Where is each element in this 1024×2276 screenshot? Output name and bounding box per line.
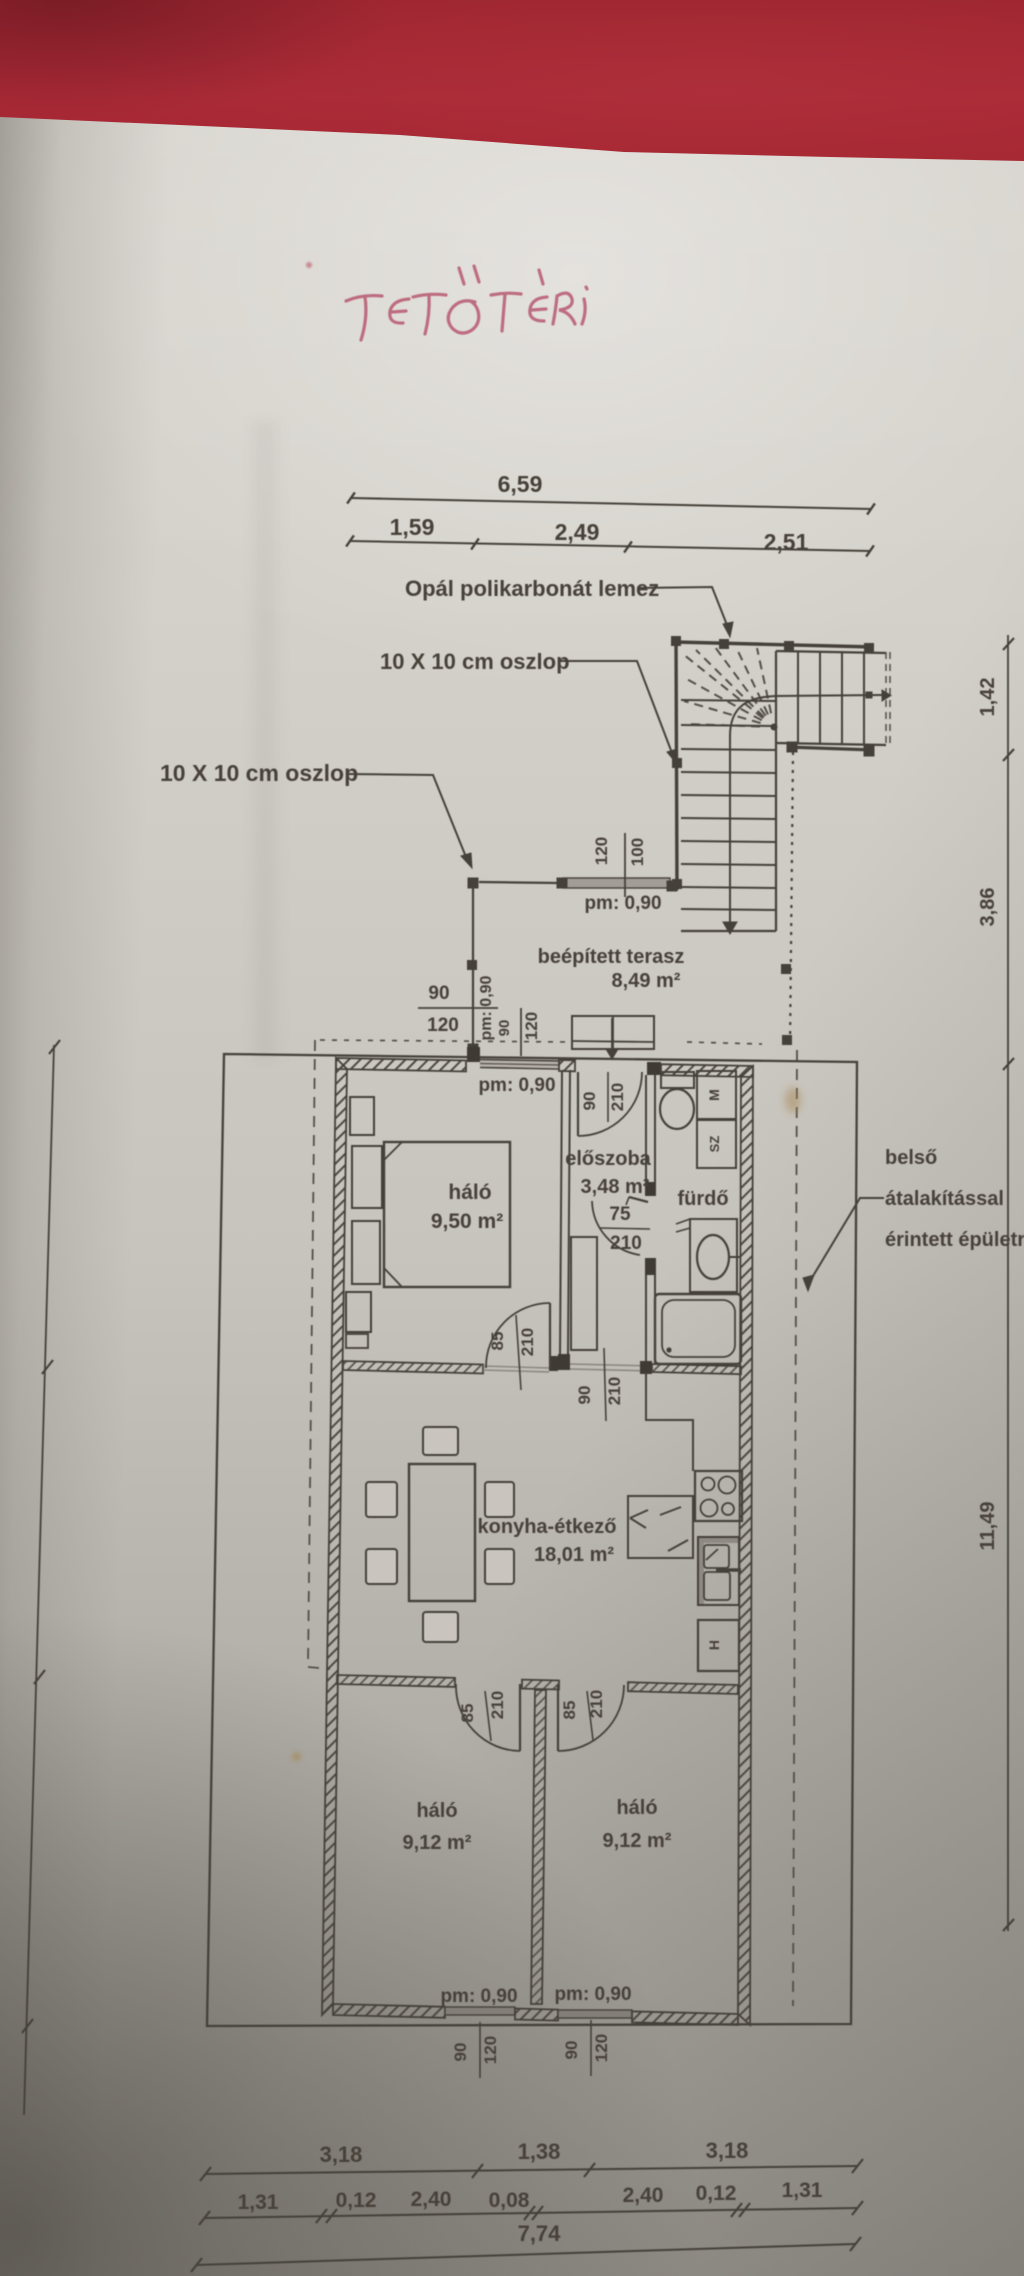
svg-text:210: 210 (587, 1690, 606, 1718)
svg-text:konyha-étkező: konyha-étkező (478, 1516, 617, 1538)
svg-text:pm: 0,90: pm: 0,90 (584, 893, 661, 914)
svg-text:2,40: 2,40 (411, 2188, 452, 2211)
svg-text:90: 90 (496, 1020, 513, 1037)
svg-text:3,48 m²: 3,48 m² (581, 1176, 650, 1198)
svg-text:8,49 m²: 8,49 m² (612, 970, 681, 992)
svg-text:pm: 0,90: pm: 0,90 (478, 975, 495, 1040)
svg-text:előszoba: előszoba (565, 1148, 651, 1170)
svg-text:H: H (706, 1640, 722, 1650)
svg-text:9,12 m²: 9,12 m² (603, 1830, 672, 1852)
svg-text:210: 210 (610, 1233, 642, 1254)
svg-text:háló: háló (416, 1800, 457, 1822)
svg-text:6,59: 6,59 (498, 471, 543, 497)
svg-text:Opál polikarbonát lemez: Opál polikarbonát lemez (405, 576, 659, 601)
svg-text:pm: 0,90: pm: 0,90 (554, 1984, 631, 2005)
svg-text:3,18: 3,18 (320, 2142, 363, 2167)
svg-text:pm: 0,90: pm: 0,90 (440, 1986, 517, 2007)
svg-text:75: 75 (609, 1204, 631, 1225)
svg-text:1,38: 1,38 (518, 2139, 561, 2164)
svg-text:3,18: 3,18 (706, 2138, 749, 2163)
svg-text:0,12: 0,12 (336, 2189, 377, 2212)
svg-text:90: 90 (580, 1092, 599, 1111)
svg-text:9,12 m²: 9,12 m² (403, 1832, 472, 1854)
svg-text:0,12: 0,12 (696, 2182, 737, 2205)
svg-text:90: 90 (575, 1386, 594, 1405)
svg-text:210: 210 (518, 1328, 537, 1356)
svg-text:átalakítással: átalakítással (885, 1188, 1004, 1210)
svg-text:2,49: 2,49 (555, 519, 600, 545)
svg-text:háló: háló (616, 1797, 657, 1819)
svg-text:háló: háló (448, 1181, 491, 1204)
svg-text:0,08: 0,08 (489, 2189, 530, 2212)
svg-text:érintett épületre: érintett épületre (885, 1229, 1024, 1251)
svg-text:85: 85 (458, 1704, 477, 1723)
svg-text:85: 85 (488, 1332, 507, 1351)
svg-text:9,50 m²: 9,50 m² (431, 1210, 503, 1233)
svg-text:10 X 10 cm oszlop: 10 X 10 cm oszlop (380, 649, 570, 674)
svg-text:120: 120 (592, 2034, 611, 2062)
svg-text:1,59: 1,59 (390, 514, 435, 540)
svg-text:18,01 m²: 18,01 m² (534, 1544, 614, 1566)
svg-text:SZ: SZ (707, 1136, 722, 1153)
svg-text:120: 120 (592, 837, 611, 865)
svg-text:1,31: 1,31 (782, 2179, 823, 2202)
svg-text:1,42: 1,42 (977, 678, 999, 717)
svg-text:90: 90 (451, 2043, 470, 2062)
svg-text:pm: 0,90: pm: 0,90 (478, 1075, 555, 1096)
svg-text:210: 210 (608, 1083, 627, 1111)
svg-text:90: 90 (562, 2041, 581, 2060)
svg-text:M: M (706, 1089, 722, 1101)
svg-text:120: 120 (427, 1015, 459, 1036)
svg-text:1,31: 1,31 (238, 2191, 279, 2214)
svg-text:120: 120 (481, 2036, 500, 2064)
svg-text:100: 100 (628, 838, 647, 866)
svg-text:3,86: 3,86 (977, 888, 999, 927)
svg-text:85: 85 (560, 1701, 579, 1720)
svg-text:fürdő: fürdő (677, 1188, 728, 1210)
svg-text:2,51: 2,51 (764, 529, 809, 555)
svg-text:7,74: 7,74 (518, 2221, 562, 2246)
svg-text:90: 90 (428, 983, 449, 1004)
svg-text:2,40: 2,40 (623, 2184, 664, 2207)
svg-text:210: 210 (488, 1691, 507, 1719)
svg-text:120: 120 (522, 1012, 541, 1040)
svg-text:11,49: 11,49 (977, 1502, 999, 1551)
svg-text:10 X 10 cm oszlop: 10 X 10 cm oszlop (160, 760, 358, 786)
svg-text:beépített terasz: beépített terasz (538, 946, 685, 968)
svg-text:210: 210 (605, 1377, 624, 1405)
svg-text:belső: belső (885, 1147, 937, 1169)
